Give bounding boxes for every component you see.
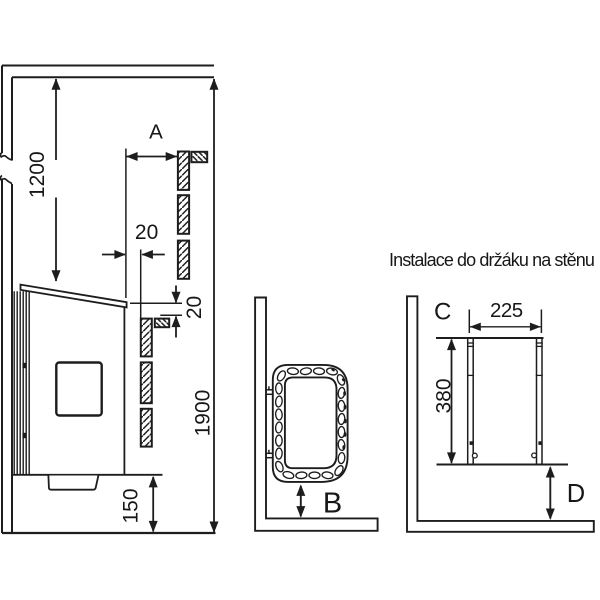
svg-text:1900: 1900: [192, 390, 215, 437]
svg-text:225: 225: [490, 299, 523, 322]
svg-text:380: 380: [433, 378, 456, 413]
svg-text:C: C: [434, 298, 451, 325]
svg-text:20: 20: [183, 296, 206, 319]
svg-text:Instalace do držáku na stěnu: Instalace do držáku na stěnu: [389, 250, 594, 270]
svg-text:20: 20: [135, 221, 158, 244]
svg-text:150: 150: [120, 488, 143, 523]
svg-text:B: B: [323, 488, 342, 520]
svg-text:A: A: [149, 120, 163, 143]
svg-text:1200: 1200: [26, 151, 49, 198]
svg-text:D: D: [567, 480, 585, 508]
